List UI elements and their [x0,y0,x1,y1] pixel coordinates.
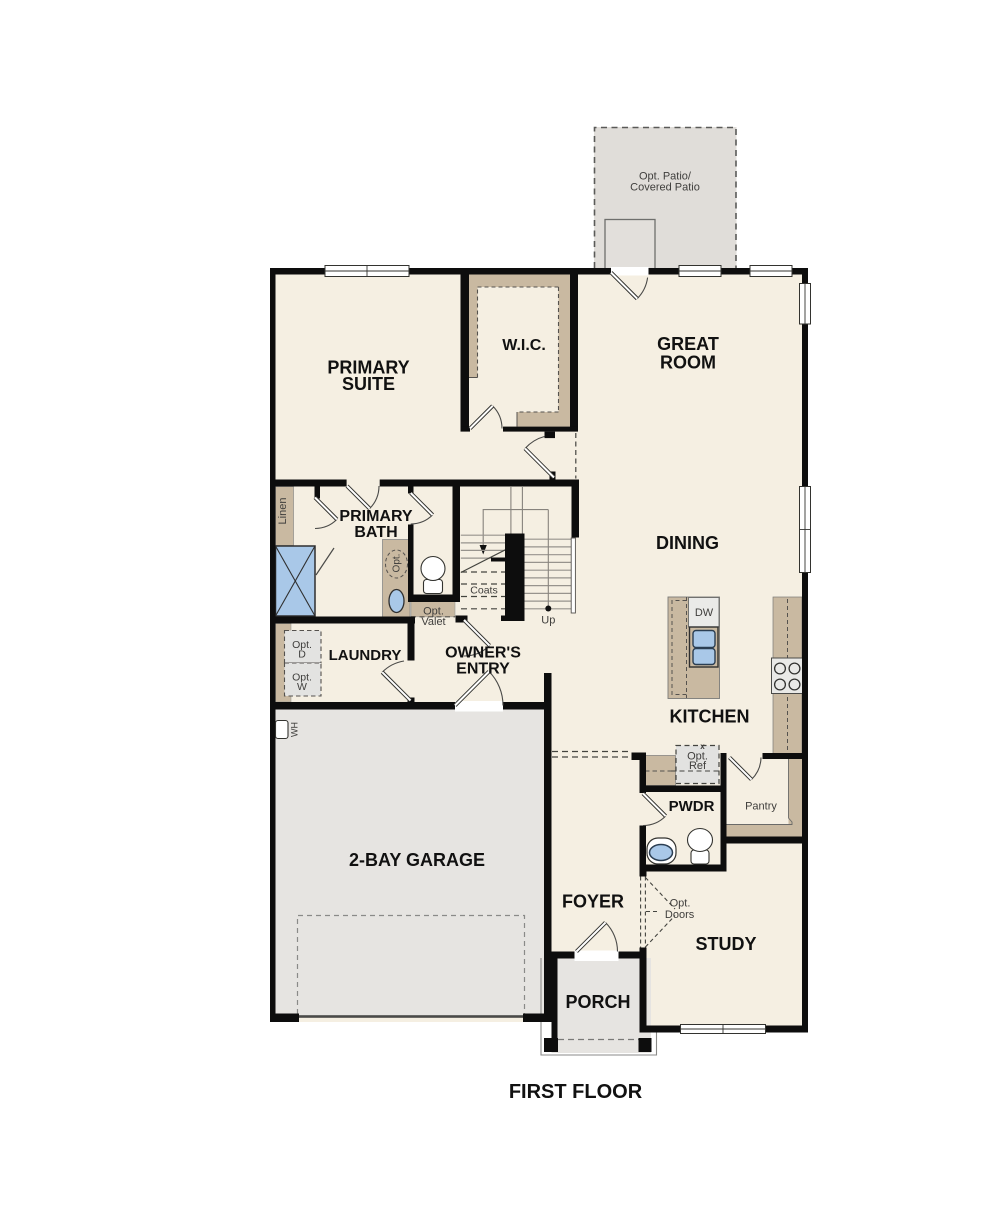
svg-text:Opt.: Opt. [670,898,691,910]
svg-text:WH: WH [290,722,300,737]
svg-text:GREAT: GREAT [657,334,719,354]
svg-text:Covered Patio: Covered Patio [630,182,700,194]
svg-text:W: W [297,681,307,693]
svg-text:DINING: DINING [656,533,719,553]
svg-text:PWDR: PWDR [669,798,715,815]
svg-text:Opt.: Opt. [392,554,403,573]
svg-text:FIRST FLOOR: FIRST FLOOR [509,1081,643,1103]
svg-text:Linen: Linen [277,498,289,525]
svg-text:KITCHEN: KITCHEN [670,707,750,727]
svg-text:Pantry: Pantry [745,801,777,813]
svg-text:BATH: BATH [354,524,397,541]
svg-text:Coats: Coats [470,585,497,597]
svg-text:Doors: Doors [665,909,695,921]
svg-text:ENTRY: ENTRY [456,661,510,678]
svg-text:D: D [298,649,306,661]
svg-text:Valet: Valet [421,616,445,628]
svg-text:Up: Up [541,615,555,627]
svg-text:PRIMARY: PRIMARY [339,508,413,525]
svg-text:ROOM: ROOM [660,353,716,373]
svg-text:LAUNDRY: LAUNDRY [329,647,402,664]
svg-text:PORCH: PORCH [565,992,630,1012]
svg-text:FOYER: FOYER [562,892,624,912]
svg-text:OWNER'S: OWNER'S [445,645,521,662]
svg-text:W.I.C.: W.I.C. [502,337,546,354]
svg-text:2-BAY GARAGE: 2-BAY GARAGE [349,850,485,870]
svg-text:Ref: Ref [689,760,707,772]
svg-text:DW: DW [695,607,714,619]
svg-text:SUITE: SUITE [342,374,395,394]
svg-text:STUDY: STUDY [695,934,756,954]
